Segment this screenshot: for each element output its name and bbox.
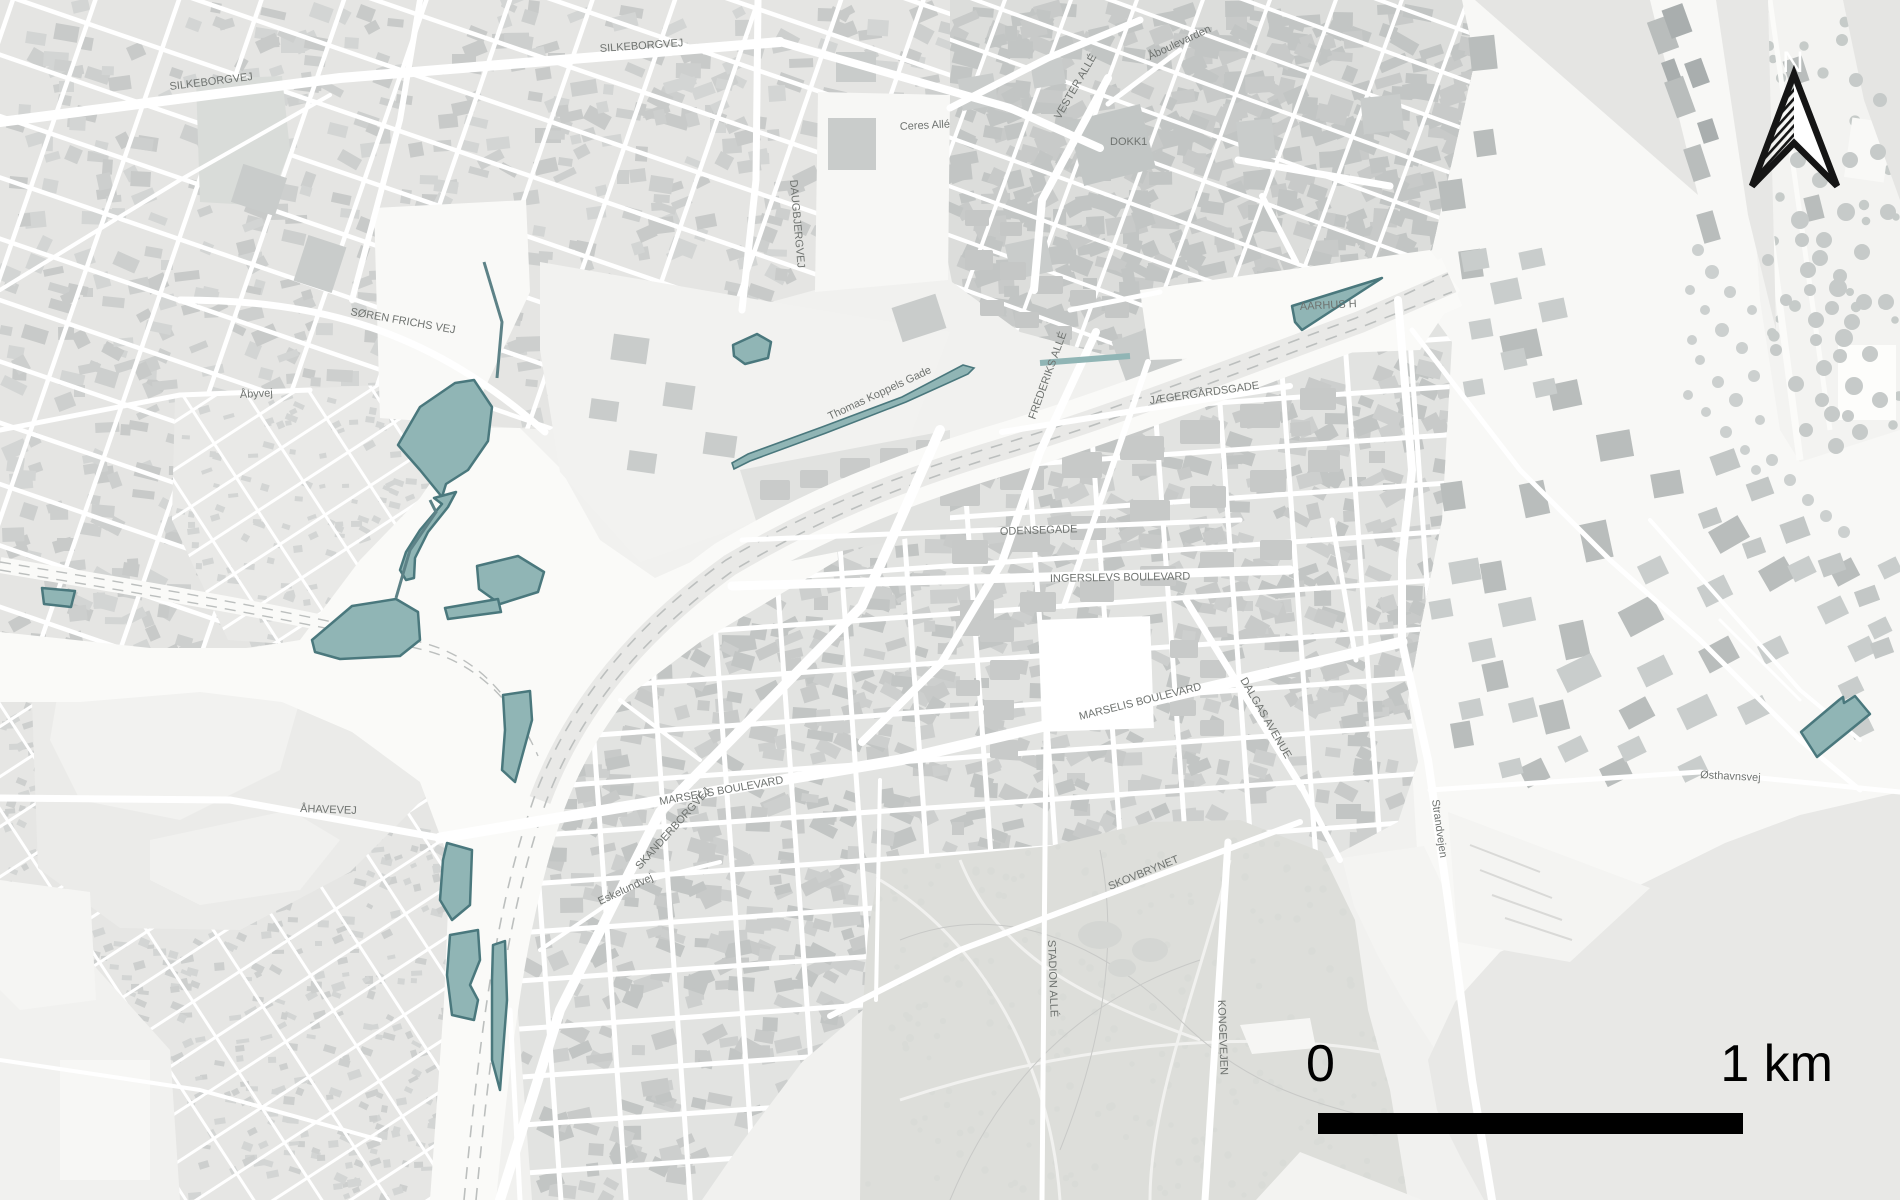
svg-text:STADION ALLÉ: STADION ALLÉ [1045, 940, 1061, 1018]
svg-text:DOKK1: DOKK1 [1110, 136, 1147, 148]
svg-text:1 km: 1 km [1720, 1035, 1833, 1093]
svg-text:Åbyvej: Åbyvej [239, 386, 273, 401]
svg-text:0: 0 [1306, 1035, 1335, 1093]
svg-text:INGERSLEVS BOULEVARD: INGERSLEVS BOULEVARD [1050, 571, 1191, 585]
svg-text:ÅHAVEVEJ: ÅHAVEVEJ [300, 802, 357, 817]
